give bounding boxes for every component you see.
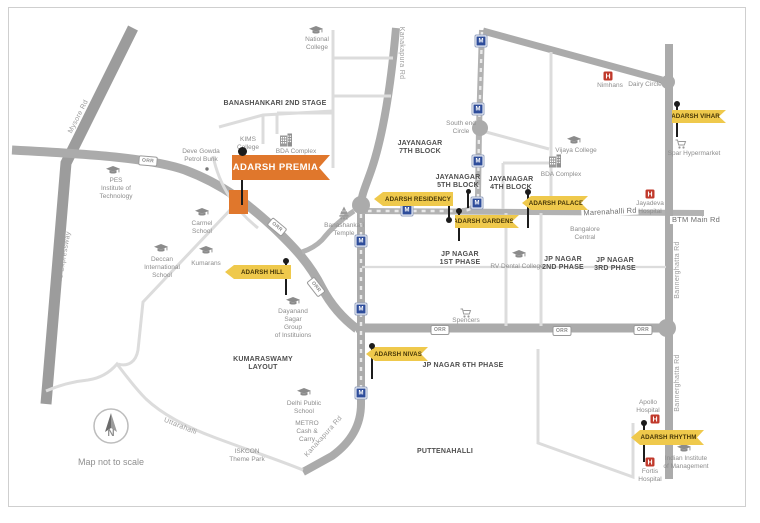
dairy-circle-label: Dairy Circle: [628, 81, 662, 89]
iskcon-theme-park-label: ISKCON Theme Park: [229, 448, 264, 464]
area-label: JP NAGAR 1ST PHASE: [440, 251, 481, 267]
location-map: N Map not to scale BANASHANKARI 2ND STAG…: [0, 0, 760, 523]
flag-adarsh-nivas-pin-dot: [369, 343, 375, 349]
metro-station-icon: M: [402, 205, 413, 216]
metro-station-icon: M: [473, 104, 484, 115]
area-label: BANASHANKARI 2ND STAGE: [223, 100, 326, 108]
flag-adarsh-palace: ADARSH PALACE: [522, 196, 588, 210]
metro-station-icon: M: [356, 236, 367, 247]
spar-hypermarket-label: Spar Hypermarket: [668, 150, 721, 158]
flag-adarsh-nivas: ADARSH NIVAS: [366, 347, 428, 361]
bda-complex-east-label: BDA Complex: [541, 171, 581, 179]
grad-cap-icon: [677, 444, 691, 454]
flag-adarsh-residency-pin-dot: [446, 217, 452, 223]
grad-cap-icon: [154, 244, 168, 254]
indian-institute-of-management-label: Indian Institute of Management: [663, 455, 708, 471]
metro-station-icon: M: [473, 156, 484, 167]
flag-adarsh-rhythm: ADARSH RHYTHM: [631, 430, 704, 445]
kumarans-label: Kumarans: [191, 260, 221, 268]
national-college-label: National College: [305, 36, 329, 52]
grad-cap-icon: [286, 297, 300, 307]
compass-north-label: N: [107, 428, 114, 439]
metro-station-icon: M: [476, 36, 487, 47]
svg-text:H: H: [652, 417, 657, 424]
hospital-icon: H: [604, 72, 613, 81]
fortis-hospital-label: Fortis Hospital: [638, 468, 661, 484]
deve-gowda-petrol-bunk-label: Deve Gowda Petrol Bunk: [182, 148, 220, 164]
carmel-school-label: Carmel School: [192, 220, 213, 236]
deccan-international-school-label: Deccan International School: [144, 256, 180, 280]
area-label: PUTTENAHALLI: [417, 448, 473, 456]
metro-station-icon: M: [356, 388, 367, 399]
jayanagar-5th-block-pin-dot: [466, 189, 471, 194]
grad-cap-icon: [106, 166, 120, 176]
metro-station-icon: M: [472, 198, 483, 209]
flag-adarsh-hill-pin-dot: [283, 258, 289, 264]
flag-adarsh-rhythm-pin-dot: [641, 420, 647, 426]
rv-dental-college-label: RV Dental College: [490, 263, 543, 271]
flag-adarsh-gardens-pin-dot: [456, 208, 462, 214]
orr-road-badge: ORR: [138, 155, 158, 167]
dot-icon: [205, 167, 210, 172]
area-label: KUMARASWAMY LAYOUT: [233, 356, 293, 372]
hospital-icon: H: [646, 458, 655, 467]
south-end-circle-label: South end Circle: [446, 120, 476, 136]
bangalore-central-label: Bangalore Central: [570, 226, 600, 242]
flag-adarsh-premia: ADARSH PREMIA: [232, 155, 330, 180]
area-label: JAYANAGAR 7TH BLOCK: [398, 140, 443, 156]
adarsh-premia-pin-dot: [238, 147, 247, 156]
nimhans-label: Nimhans: [597, 82, 623, 90]
grad-cap-icon: [567, 136, 581, 146]
grad-cap-icon: [309, 26, 323, 36]
flag-adarsh-palace-pin-dot: [525, 189, 531, 195]
grad-cap-icon: [297, 388, 311, 398]
road-label: Kanakapura Rd: [397, 27, 405, 80]
building-icon: [280, 134, 292, 147]
grad-cap-icon: [199, 246, 213, 256]
svg-text:H: H: [647, 192, 652, 199]
bda-complex-west-label: BDA Complex: [276, 148, 316, 156]
hospital-icon: H: [651, 415, 660, 424]
orr-road-badge: ORR: [553, 326, 572, 336]
compass: N: [91, 406, 131, 446]
vijaya-college-label: Vijaya College: [555, 147, 596, 155]
grad-cap-icon: [195, 208, 209, 218]
area-label: JP NAGAR 3RD PHASE: [594, 257, 636, 273]
hospital-icon: H: [646, 190, 655, 199]
building-icon: [549, 155, 561, 168]
cart-icon: [461, 308, 472, 318]
road-label: Bannerghatta Rd: [674, 354, 682, 411]
scale-note: Map not to scale: [78, 457, 144, 467]
jayadeva-hospital-label: Jayadeva Hospital: [636, 200, 664, 216]
orr-road-badge: ORR: [634, 325, 653, 335]
area-label: JP NAGAR 2ND PHASE: [542, 256, 584, 272]
pes-institute-of-technology-label: PES Institute of Technology: [100, 177, 133, 201]
delhi-public-school-label: Delhi Public School: [287, 400, 321, 416]
jayanagar-5th-block-pin-stem: [467, 191, 469, 208]
area-label: JAYANAGAR 5TH BLOCK: [436, 174, 481, 190]
metro-station-icon: M: [356, 304, 367, 315]
flag-adarsh-gardens: ADARSH GARDENS: [455, 215, 519, 228]
flag-adarsh-vihar: ADARSH VIHAR: [672, 110, 726, 123]
flag-adarsh-vihar-pin-dot: [674, 101, 680, 107]
north-arrow-icon: [91, 406, 131, 446]
adarsh-premia-site: [229, 190, 248, 214]
flag-adarsh-palace-pin-stem: [527, 192, 529, 228]
spencers-label: Spencers: [452, 317, 479, 325]
dayanand-sagar-group-label: Dayanand Sagar Group of Instituions: [275, 308, 312, 340]
area-label: JP NAGAR 6TH PHASE: [423, 362, 504, 370]
road-label: BTM Main Rd: [670, 216, 722, 224]
cart-icon: [676, 139, 687, 149]
orr-road-badge: ORR: [431, 325, 450, 335]
flag-adarsh-hill: ADARSH HILL: [225, 265, 291, 279]
flag-adarsh-residency: ADARSH RESIDENCY: [374, 192, 453, 206]
svg-text:H: H: [647, 460, 652, 467]
apollo-hospital-label: Apollo Hospital: [636, 399, 659, 415]
temple-icon: [338, 207, 350, 220]
svg-text:H: H: [605, 74, 610, 81]
grad-cap-icon: [512, 250, 526, 260]
road-label: Bannerghatta Rd: [674, 241, 682, 298]
